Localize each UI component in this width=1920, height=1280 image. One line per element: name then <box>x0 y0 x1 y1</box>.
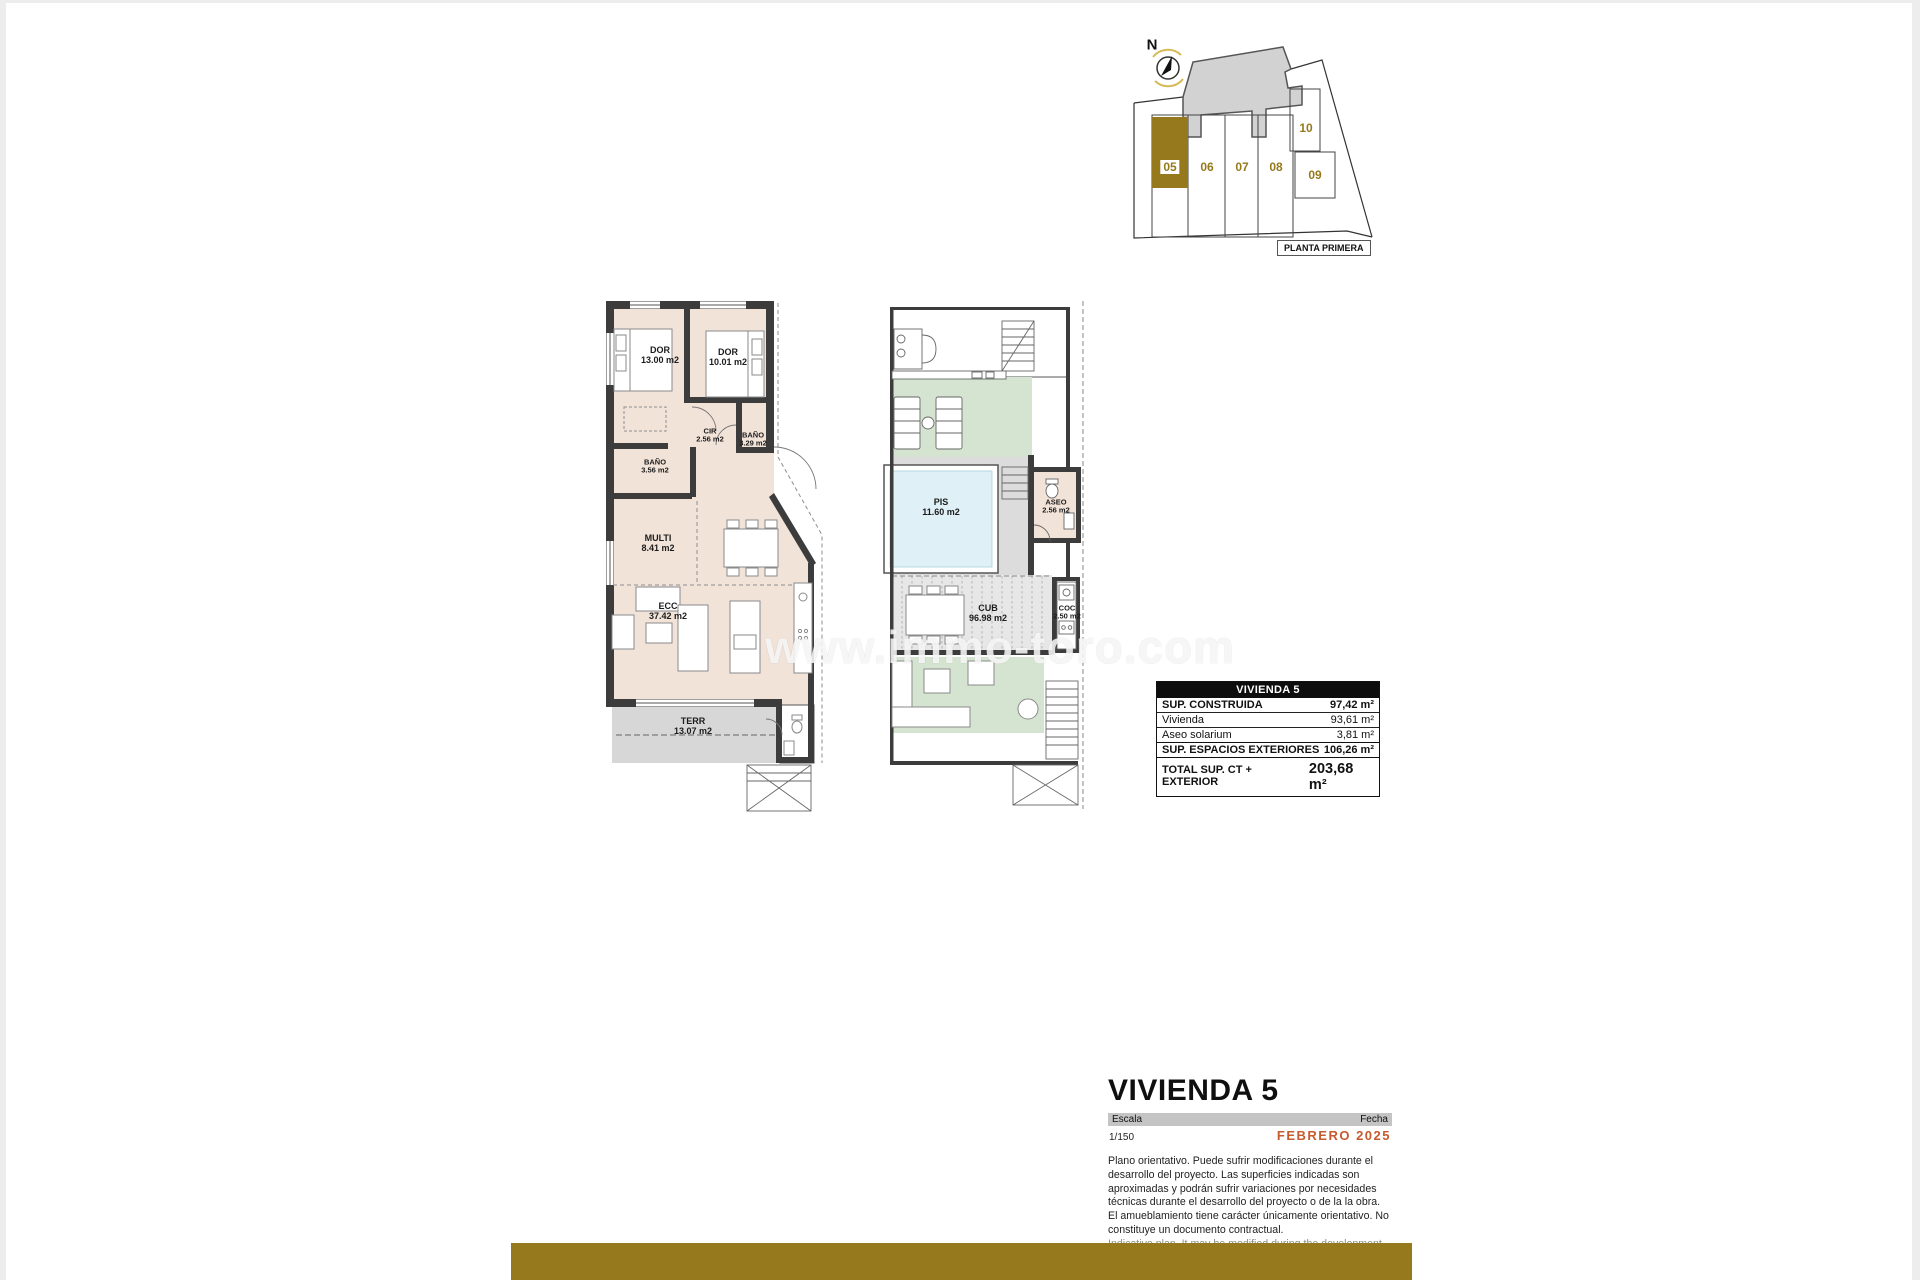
date-label: Fecha <box>1360 1114 1388 1125</box>
room-label-terr: TERR13.07 m2 <box>674 716 712 736</box>
table-title: VIVIENDA 5 <box>1157 682 1379 698</box>
table-row-aseo-solarium: Aseo solarium 3,81 m² <box>1157 727 1379 742</box>
surface-summary-table: VIVIENDA 5 SUP. CONSTRUIDA 97,42 m² Vivi… <box>1156 681 1380 797</box>
page-edge-left <box>0 0 6 1280</box>
date-value: FEBRERO 2025 <box>1277 1128 1391 1143</box>
scale-date-bar: Escala Fecha <box>1108 1113 1392 1126</box>
site-building-shape <box>1183 47 1302 137</box>
site-plan-drawing <box>1125 25 1425 275</box>
plan-sheet: N 05 06 07 08 09 10 PLANTA PRIMERA <box>0 0 1920 1280</box>
table-row-total: TOTAL SUP. CT + EXTERIOR 203,68 m² <box>1157 757 1379 796</box>
scale-label: Escala <box>1112 1114 1142 1125</box>
compass-north-label: N <box>1147 37 1158 54</box>
disclaimer-spanish: Plano orientativo. Puede sufrir modifica… <box>1108 1155 1392 1238</box>
footer-brand-bar <box>511 1243 1412 1280</box>
table-row-construida: SUP. CONSTRUIDA 97,42 m² <box>1157 698 1379 712</box>
room-label-bano2: BAÑO3.29 m2 <box>739 432 767 449</box>
room-label-bano1: BAÑO3.56 m2 <box>641 459 669 476</box>
site-unit-07: 07 <box>1235 160 1248 174</box>
room-label-dor1: DOR13.00 m2 <box>641 345 679 365</box>
site-unit-06: 06 <box>1200 160 1213 174</box>
entrance-canopy <box>1013 765 1078 805</box>
site-unit-05: 05 <box>1160 160 1179 174</box>
site-unit-10: 10 <box>1299 121 1312 135</box>
compass-icon <box>1153 50 1183 86</box>
site-unit-08: 08 <box>1269 160 1282 174</box>
page-edge-right <box>1912 0 1920 1280</box>
solarium-plan-drawing <box>880 295 1125 875</box>
page-edge-top <box>0 0 1920 3</box>
site-key-plan: N 05 06 07 08 09 10 PLANTA PRIMERA <box>1125 25 1425 275</box>
pool-water <box>890 471 992 567</box>
room-label-ecc: ECC37.42 m2 <box>649 601 687 621</box>
solarium-floor-plan: PIS11.60 m2 ASEO2.56 m2 CUB96.98 m2 COC2… <box>880 295 1125 875</box>
scale-value: 1/150 <box>1109 1132 1134 1143</box>
room-label-coc: COC2.50 m2 <box>1053 605 1081 622</box>
room-label-multi: MULTI8.41 m2 <box>641 533 674 553</box>
table-row-vivienda: Vivienda 93,61 m² <box>1157 712 1379 727</box>
watermark: www.immo-toro.com <box>640 620 1360 674</box>
exterior-stair <box>1046 681 1078 759</box>
interior-floor-plan: DOR13.00 m2 DOR10.01 m2 CIR2.56 m2 BAÑO3… <box>600 295 845 865</box>
room-label-dor2: DOR10.01 m2 <box>709 347 747 367</box>
room-label-cir: CIR2.56 m2 <box>696 428 724 445</box>
scale-date-values: 1/150 FEBRERO 2025 <box>1108 1128 1392 1143</box>
stairs-canopy <box>747 765 811 811</box>
table-row-exteriores: SUP. ESPACIOS EXTERIORES 106,26 m² <box>1157 742 1379 757</box>
interior-plan-drawing <box>600 295 845 865</box>
room-label-aseo: ASEO2.56 m2 <box>1042 499 1070 516</box>
room-label-pis: PIS11.60 m2 <box>922 497 960 517</box>
unit-05-highlight <box>1152 117 1188 188</box>
floor-name-box: PLANTA PRIMERA <box>1277 240 1371 256</box>
sheet-title: VIVIENDA 5 <box>1108 1074 1392 1108</box>
site-unit-09: 09 <box>1308 168 1321 182</box>
